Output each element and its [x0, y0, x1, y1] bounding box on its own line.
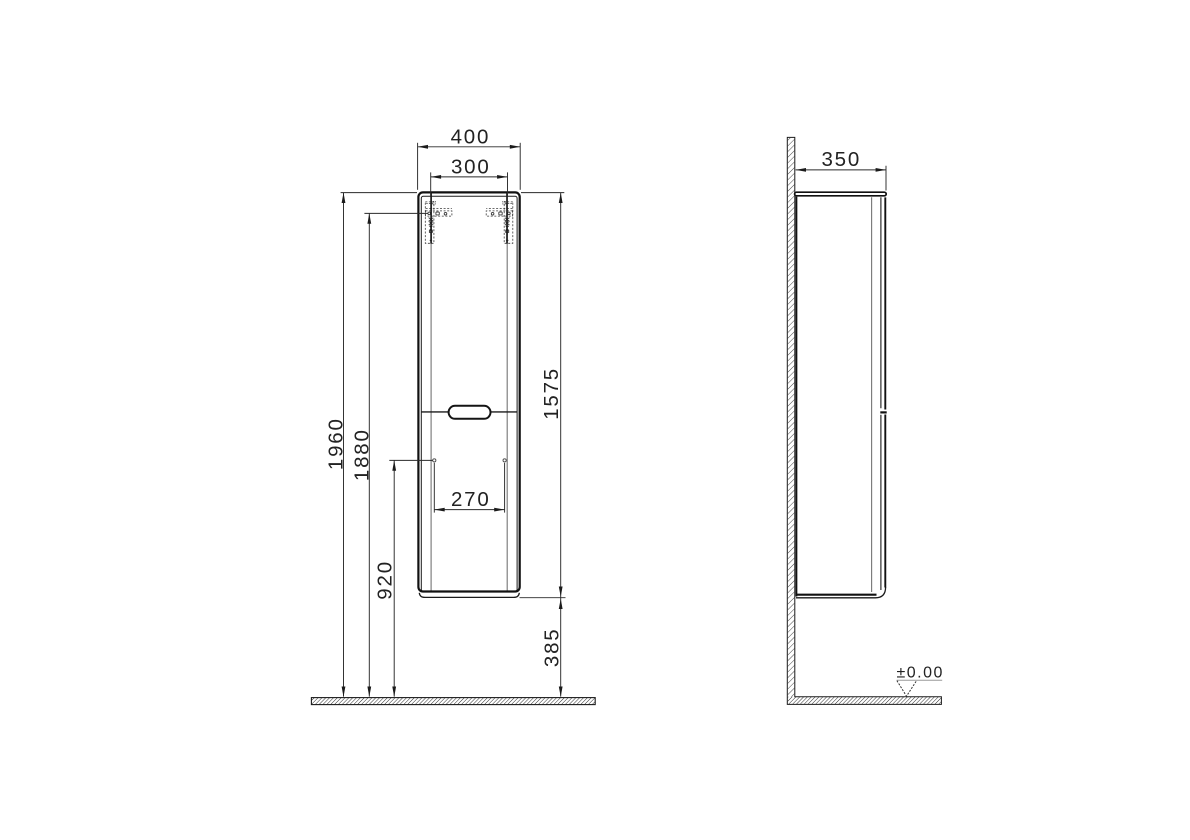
svg-text:400: 400	[451, 125, 491, 148]
svg-text:1960: 1960	[325, 417, 348, 470]
svg-text:1880: 1880	[351, 428, 374, 481]
svg-text:385: 385	[541, 627, 564, 667]
svg-text:350: 350	[821, 148, 861, 171]
svg-text:270: 270	[451, 488, 491, 511]
svg-text:300: 300	[451, 155, 491, 178]
svg-text:±0.00: ±0.00	[897, 665, 944, 682]
svg-text:920: 920	[374, 560, 397, 600]
svg-text:1575: 1575	[540, 367, 563, 420]
